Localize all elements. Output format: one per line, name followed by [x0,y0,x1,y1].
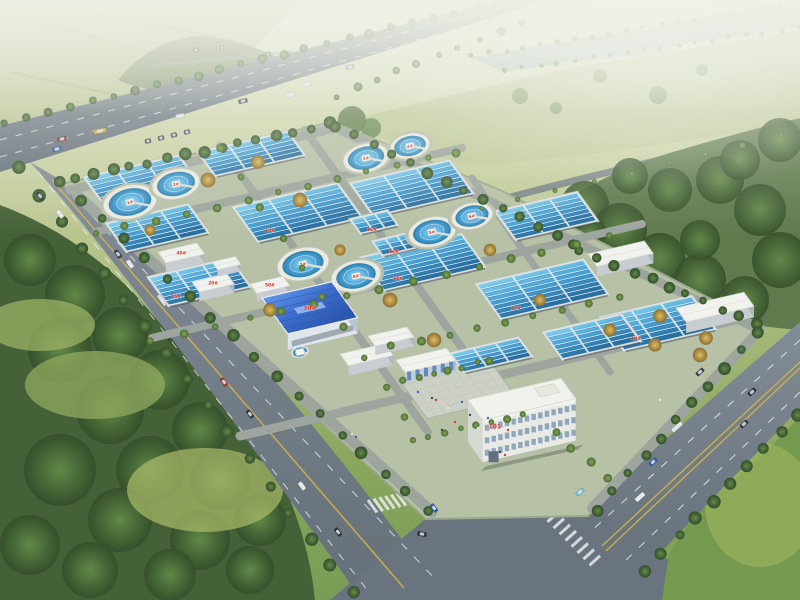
rendered-scene: 1#2#3#4#5#6#7#8# 40#20#50#30#10114#15#16… [0,0,800,600]
aerial-rendering-water-treatment-plant: 1#2#3#4#5#6#7#8# 40#20#50#30#10114#15#16… [0,0,800,600]
atmospheric-haze-overlay [0,0,800,600]
